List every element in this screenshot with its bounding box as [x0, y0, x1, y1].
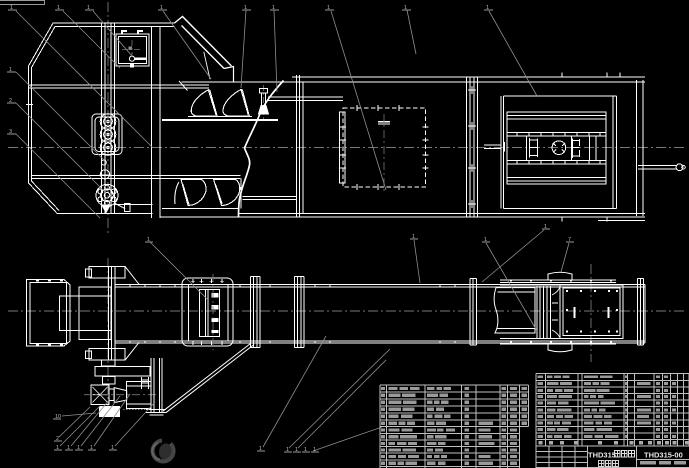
svg-text:2: 2: [9, 98, 12, 104]
svg-text:1: 1: [160, 5, 163, 11]
svg-text:2: 2: [56, 436, 59, 442]
svg-text:1: 1: [484, 237, 487, 243]
svg-text:1: 1: [67, 445, 70, 451]
svg-text:1: 1: [404, 5, 407, 11]
svg-text:1: 1: [544, 224, 547, 230]
svg-text:1: 1: [147, 237, 150, 243]
svg-text:1: 1: [9, 67, 12, 73]
svg-text:1: 1: [486, 5, 489, 11]
svg-text:10: 10: [55, 414, 61, 420]
svg-text:1: 1: [313, 447, 316, 453]
svg-text:3: 3: [9, 129, 12, 135]
svg-text:1: 1: [327, 5, 330, 11]
svg-text:THD315: THD315: [588, 451, 616, 460]
svg-text:7: 7: [568, 237, 571, 243]
svg-text:1: 1: [111, 445, 114, 451]
svg-text:1: 1: [244, 5, 247, 11]
svg-text:1: 1: [295, 447, 298, 453]
svg-text:1: 1: [304, 447, 307, 453]
svg-text:1: 1: [286, 447, 289, 453]
svg-text:1: 1: [412, 234, 415, 240]
svg-text:1: 1: [90, 445, 93, 451]
svg-text:1: 1: [57, 5, 60, 11]
svg-text:1: 1: [272, 5, 275, 11]
svg-text:1: 1: [259, 446, 262, 452]
svg-text:1: 1: [87, 5, 90, 11]
svg-text:THD315-00: THD315-00: [644, 451, 683, 460]
svg-text:1: 1: [77, 445, 80, 451]
svg-text:1: 1: [10, 5, 13, 11]
svg-text:1: 1: [56, 445, 59, 451]
